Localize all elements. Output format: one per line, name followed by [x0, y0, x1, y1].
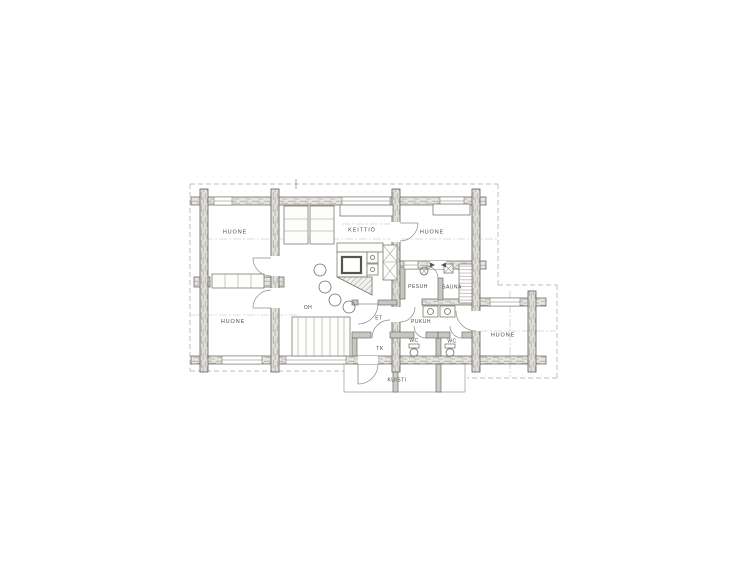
room-label-keittio: KEITTIÖ [348, 227, 376, 234]
room-label-huone-wing: HUONE [491, 333, 515, 339]
room-label-huone-top-left: HUONE [223, 230, 247, 236]
room-label-sauna: SAUNA [442, 285, 462, 291]
porch-post [436, 364, 441, 392]
wall-left [200, 189, 208, 372]
closet-row [212, 274, 264, 288]
room-label-pukuh: PUKUH [411, 319, 431, 325]
room-label-wc-left: WC [409, 338, 418, 344]
room-label-huone-bottom-left: HUONE [221, 319, 245, 325]
sauna-benches [459, 264, 472, 303]
wall-right [472, 189, 480, 372]
floor-plan-drawing: HUONE KEITTIÖ HUONE PESUH SAUNA OH HUONE… [0, 0, 755, 566]
scanned-floor-plan-page: HUONE KEITTIÖ HUONE PESUH SAUNA OH HUONE… [0, 0, 755, 566]
room-label-huone-top-right: HUONE [420, 230, 444, 236]
wall-a [271, 189, 279, 372]
wall-wing-right [528, 291, 536, 372]
room-label-pesuh: PESUH [408, 284, 428, 290]
chimney-flue [383, 245, 397, 280]
room-label-tk: TK [376, 346, 384, 352]
firebox [342, 257, 361, 273]
bedroom-closet [433, 204, 470, 215]
room-label-oh: OH [304, 305, 313, 311]
room-label-et: ET [375, 316, 382, 322]
stairs [292, 317, 350, 356]
room-label-wc-right: WC [447, 339, 456, 345]
paper-background [0, 0, 755, 566]
room-label-kuisti: KUISTI [387, 378, 406, 384]
wall-b [392, 189, 400, 372]
